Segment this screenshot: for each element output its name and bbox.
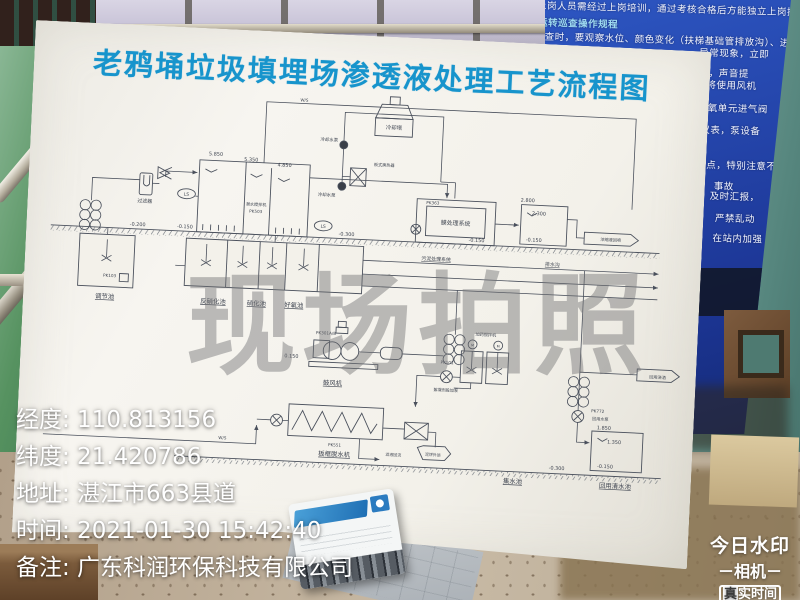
diagram-label: 调节池 [95,291,115,301]
diagram-label: 泥饼外运 [425,452,441,458]
sign-text-row: 点，特别注意不 [706,157,776,173]
overlay-field: 地址: 湛江市663县道 [16,476,353,513]
sign-text-row: 及时汇报， [709,188,759,203]
breaker-logo-icon [370,494,390,513]
overlay-field: 时间: 2021-01-30 15:42:40 [16,513,353,550]
sign-text-row: 在站内加强 [712,230,762,245]
diagram-label: 回用水泵 [592,415,609,422]
diagram-label: PK772 [591,408,605,414]
cardboard-box [709,434,799,507]
diagram-label: -0.150 [177,224,193,231]
diagram-label: 回用浇洒 [649,373,666,380]
diagram-label: 1.350 [607,440,621,447]
center-watermark: 现场拍照 [186,236,650,396]
diagram-label: 2.800 [521,198,535,205]
diagram-label: -0.300 [548,465,564,472]
overlay-field: 纬度: 21.420786 [16,439,353,476]
diagram-label: 5.350 [244,157,258,164]
badge-first-char: 真 [723,587,738,600]
diagram-label: 冷却水泵 [320,136,339,144]
diagram-label: -0.200 [130,222,146,229]
diagram-label: 4.850 [277,162,291,169]
overlay-field: 备注: 广东科润环保科技有限公司 [16,550,353,587]
photo-scene: 9、新上岗人员需经过上岗培训，通过考核合格后方能独立上岗操作二、运转巡查操作规程… [0,0,800,600]
real-time-badge: 真实时间 [719,585,781,600]
aeration-tank [176,159,335,238]
brand-camera: －相机－ [704,558,796,582]
wooden-frame [724,310,790,398]
diagram-label: 潜水搅拌机 [246,200,268,207]
diagram-label: W/S [300,97,309,102]
watermark-brand: 今日水印 －相机－ 真实时间 [704,531,796,600]
diagram-label: 膜处理系统 [441,218,471,227]
diagram-label: 过滤器 [137,197,152,205]
diagram-label: PK363 [426,200,440,206]
sign-text-row: 仪表，泵设备 [700,122,760,138]
brand-name: 今日水印 [704,531,796,558]
sign-text-row: 严禁乱动 [715,210,755,225]
overlay-field: 经度: 110.813156 [16,402,353,439]
cooling-tower [338,94,414,193]
diagram-label: PK503 [249,208,263,214]
diagram-label: LS [184,192,190,198]
diagram-label: 2.300 [532,211,546,218]
inlet-filter [139,166,172,196]
badge-rest: 实时间 [738,587,777,600]
diagram-label: -0.150 [597,464,613,471]
diagram-label: LS [320,224,326,230]
diagram-label: 冷却水泵 [318,191,337,199]
diagram-label: 冷却塔 [386,123,403,132]
diagram-label: 板式换热器 [374,161,395,168]
diagram-label: 滤液回流 [385,452,401,458]
diagram-label: 5.850 [209,151,223,158]
diagram-label: PK103 [103,273,117,279]
diagram-label: 1.850 [597,425,611,432]
diagram-label: 集水池 [503,476,523,486]
diagram-label: 回用清水池 [599,481,632,492]
gps-info-overlay: 经度: 110.813156纬度: 21.420786地址: 湛江市663县道时… [16,402,353,587]
